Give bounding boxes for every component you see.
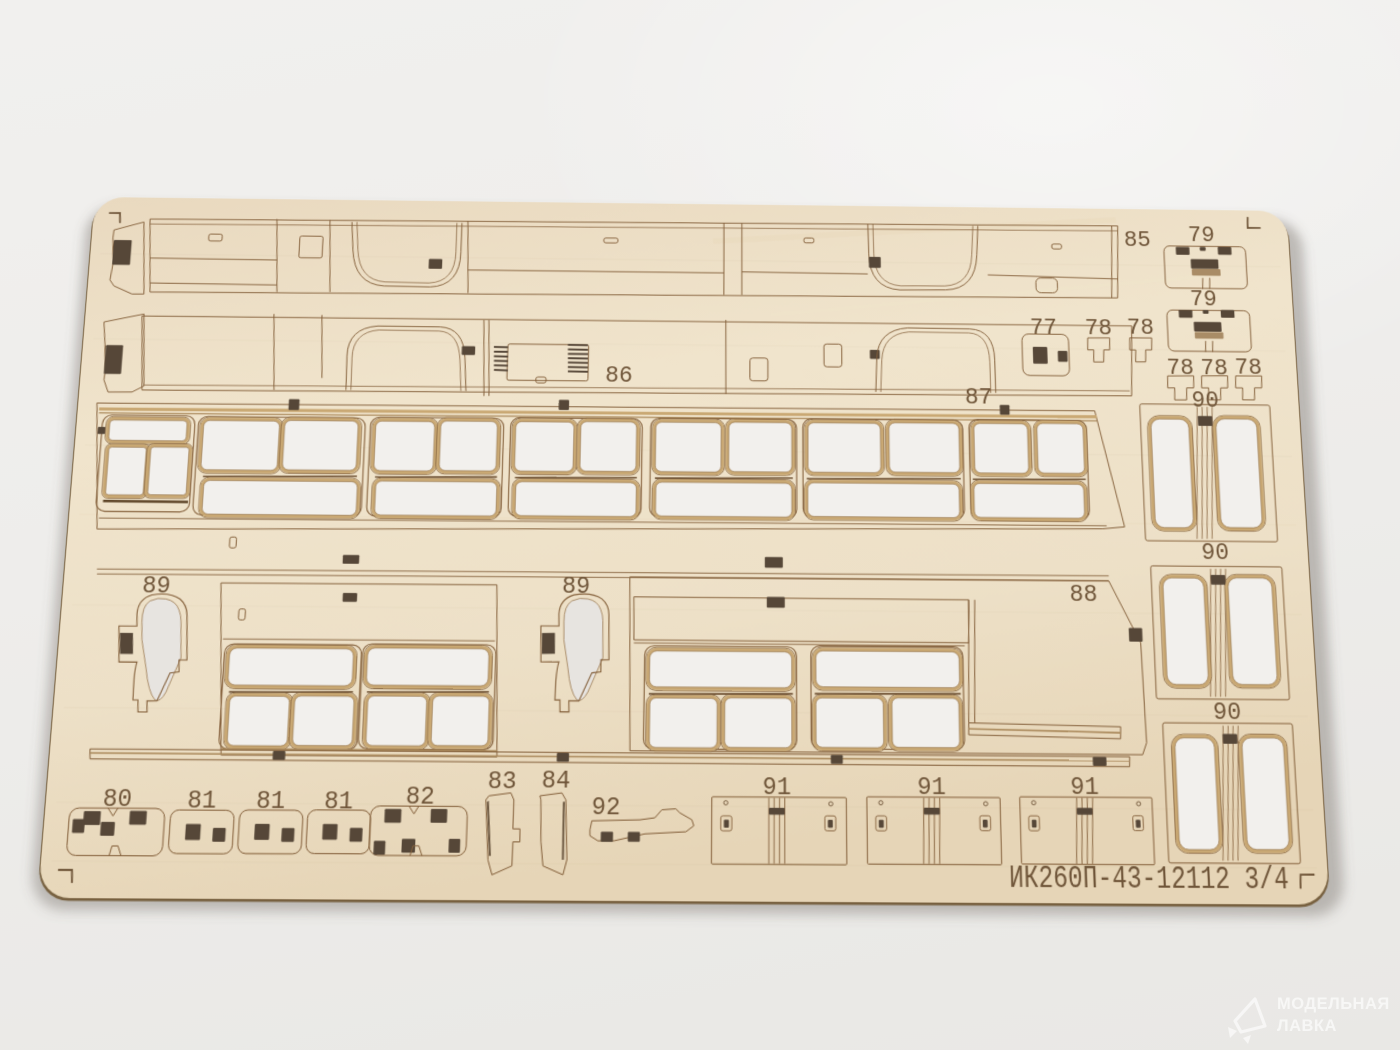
svg-text:84: 84 xyxy=(541,769,571,796)
svg-text:87: 87 xyxy=(965,386,993,411)
svg-text:78: 78 xyxy=(1084,317,1112,341)
svg-text:81: 81 xyxy=(186,789,217,816)
svg-text:90: 90 xyxy=(1212,700,1242,726)
svg-text:92: 92 xyxy=(591,795,620,822)
svg-text:89: 89 xyxy=(141,575,171,601)
svg-text:78: 78 xyxy=(1166,357,1194,382)
svg-text:79: 79 xyxy=(1189,288,1217,312)
svg-text:85: 85 xyxy=(1124,229,1152,253)
svg-text:78: 78 xyxy=(1200,357,1228,382)
svg-text:78: 78 xyxy=(1126,317,1154,341)
svg-text:86: 86 xyxy=(605,364,633,389)
svg-text:81: 81 xyxy=(324,789,354,816)
svg-text:79: 79 xyxy=(1187,224,1215,248)
svg-text:89: 89 xyxy=(562,575,591,601)
svg-text:81: 81 xyxy=(255,789,286,816)
svg-text:ЛАВКА: ЛАВКА xyxy=(1277,1017,1337,1035)
svg-text:90: 90 xyxy=(1201,541,1230,567)
svg-text:МОДЕЛЬНАЯ: МОДЕЛЬНАЯ xyxy=(1277,995,1390,1013)
svg-text:83: 83 xyxy=(487,769,517,796)
svg-text:78: 78 xyxy=(1234,357,1263,382)
svg-text:88: 88 xyxy=(1069,583,1098,609)
svg-text:ИК260П-43-12112 3/4: ИК260П-43-12112 3/4 xyxy=(1009,862,1290,899)
svg-text:90: 90 xyxy=(1191,389,1220,414)
svg-text:77: 77 xyxy=(1030,317,1058,341)
